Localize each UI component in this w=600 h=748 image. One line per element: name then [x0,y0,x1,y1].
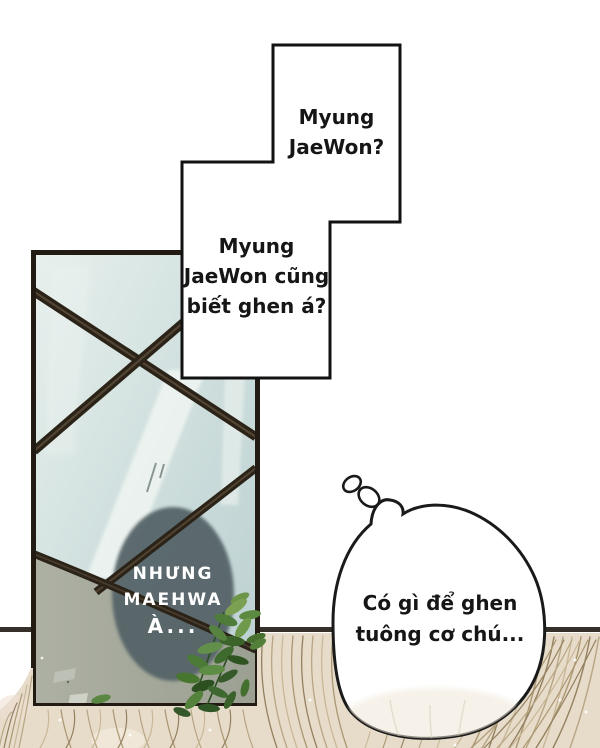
gray-speck [67,681,69,683]
hair-sparkle [129,734,132,737]
hair-sparkle [585,711,588,714]
comic-scene [0,0,600,748]
gray-sparkle [41,657,44,660]
comic-page: Myung JaeWon? Myung JaeWon cũng biết ghe… [0,0,600,748]
hair-sparkle [574,659,577,662]
hair-sparkle [309,699,312,702]
speech-bubble-stepped [182,45,400,378]
hair-sparkle [209,729,212,732]
thought-bubble [333,473,545,748]
hair-sparkle [59,719,62,722]
hair-sparkle [559,699,562,702]
hair-sparkle [454,744,457,747]
